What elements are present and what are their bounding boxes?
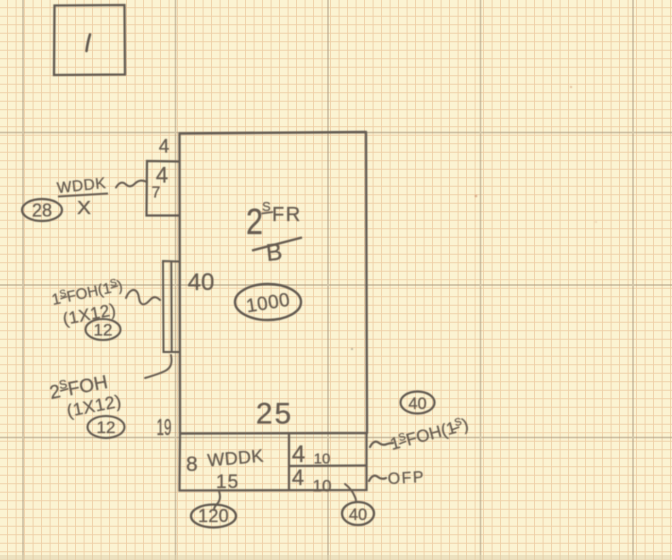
svg-text:19: 19 (157, 414, 172, 440)
svg-text:FR: FR (272, 204, 302, 226)
svg-text:40: 40 (188, 269, 215, 296)
svg-text:8: 8 (186, 453, 198, 476)
svg-text:10: 10 (314, 451, 331, 468)
svg-text:40: 40 (408, 395, 426, 413)
svg-text:28: 28 (32, 201, 52, 221)
svg-text:4: 4 (292, 441, 305, 468)
svg-text:OFP: OFP (387, 469, 425, 488)
svg-text:12: 12 (97, 418, 116, 437)
svg-text:4: 4 (292, 465, 304, 490)
svg-text:40: 40 (349, 506, 367, 524)
svg-text:25: 25 (256, 398, 293, 431)
svg-text:10: 10 (313, 477, 332, 496)
svg-text:X: X (77, 198, 91, 218)
svg-text:120: 120 (198, 506, 229, 526)
svg-text:7: 7 (152, 185, 161, 202)
svg-text:2: 2 (246, 201, 263, 242)
svg-text:B: B (265, 238, 284, 267)
svg-text:4: 4 (159, 137, 170, 158)
svg-text:15: 15 (216, 472, 239, 493)
svg-text:12: 12 (94, 321, 113, 340)
